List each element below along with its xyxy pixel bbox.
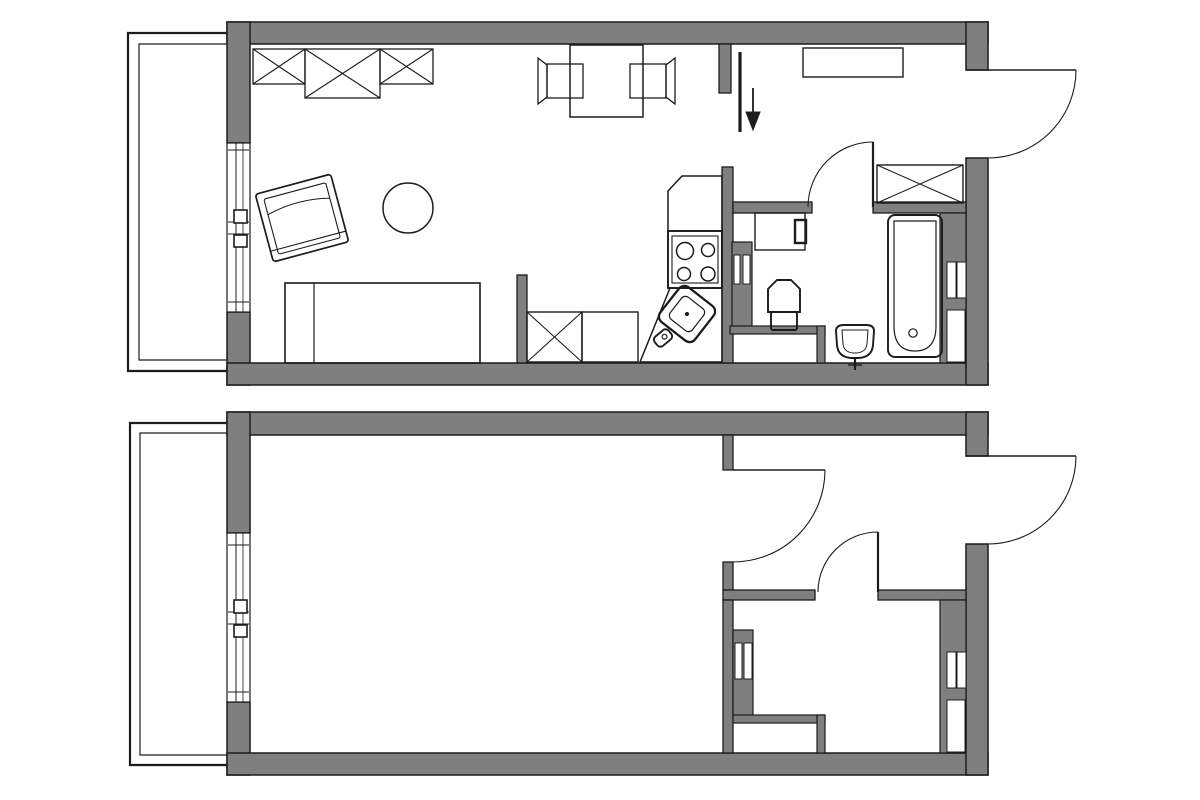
balcony-outline	[128, 33, 228, 371]
wall-right-upper	[966, 412, 988, 456]
wall-right-lower	[966, 158, 988, 385]
kitchen-faucet	[652, 328, 674, 349]
duct-shaft-right	[940, 600, 966, 753]
bath-ledge	[730, 326, 825, 363]
main-room-door	[733, 470, 825, 562]
bath-ledge	[733, 715, 825, 753]
wall-hall-bath-left	[723, 590, 815, 600]
wall-bath-left	[723, 600, 733, 753]
wall-left-upper	[227, 412, 250, 533]
kitchen-cabinet-x	[527, 312, 582, 362]
floor-plan-canvas	[0, 0, 1200, 800]
washing-machine	[755, 213, 806, 250]
duct-shaft-left	[732, 242, 752, 332]
wall-top	[227, 22, 988, 44]
floor-plan-page	[0, 0, 1200, 800]
kitchen-counter	[582, 312, 638, 362]
bed	[285, 283, 480, 363]
kitchen-upper-counter	[668, 176, 722, 231]
hall-shelf	[803, 48, 903, 77]
kitchen-sink	[656, 283, 718, 345]
wall-hall-upper	[723, 435, 733, 470]
toilet	[768, 280, 800, 330]
wall-right-upper	[966, 22, 988, 70]
wall-hall-bath-left	[733, 202, 812, 213]
bathroom-door	[818, 532, 878, 592]
upper-plan-furnished	[128, 22, 1076, 385]
wall-bottom	[227, 363, 988, 385]
entrance-door	[966, 70, 1076, 158]
armchair	[255, 174, 348, 262]
entry-direction-arrow	[746, 88, 760, 130]
wall-stub-hall	[719, 44, 731, 93]
bathtub	[888, 215, 942, 357]
entrance-door	[966, 456, 1076, 544]
chair-left	[538, 58, 583, 104]
wall-left-upper	[227, 22, 250, 143]
wall-right-lower	[966, 544, 988, 775]
hall-wardrobe-x	[877, 165, 963, 203]
bathroom-door	[808, 142, 873, 207]
wall-kitchen-stub	[517, 275, 527, 363]
dining-table	[570, 45, 643, 117]
lower-plan-unfurnished	[130, 412, 1076, 775]
wardrobe-row	[253, 49, 433, 98]
duct-shaft-right	[940, 213, 966, 363]
wall-bottom	[227, 753, 988, 775]
wall-hall-lower	[723, 562, 733, 590]
wall-top	[227, 412, 988, 435]
chair-right	[630, 58, 675, 104]
stove	[668, 231, 722, 288]
balcony-outline	[130, 423, 230, 765]
window-balcony-unit	[227, 143, 250, 312]
wall-hall-bath-right	[878, 590, 966, 600]
window-balcony-unit	[227, 533, 250, 702]
duct-shaft-left	[733, 630, 753, 718]
round-table	[383, 183, 433, 233]
